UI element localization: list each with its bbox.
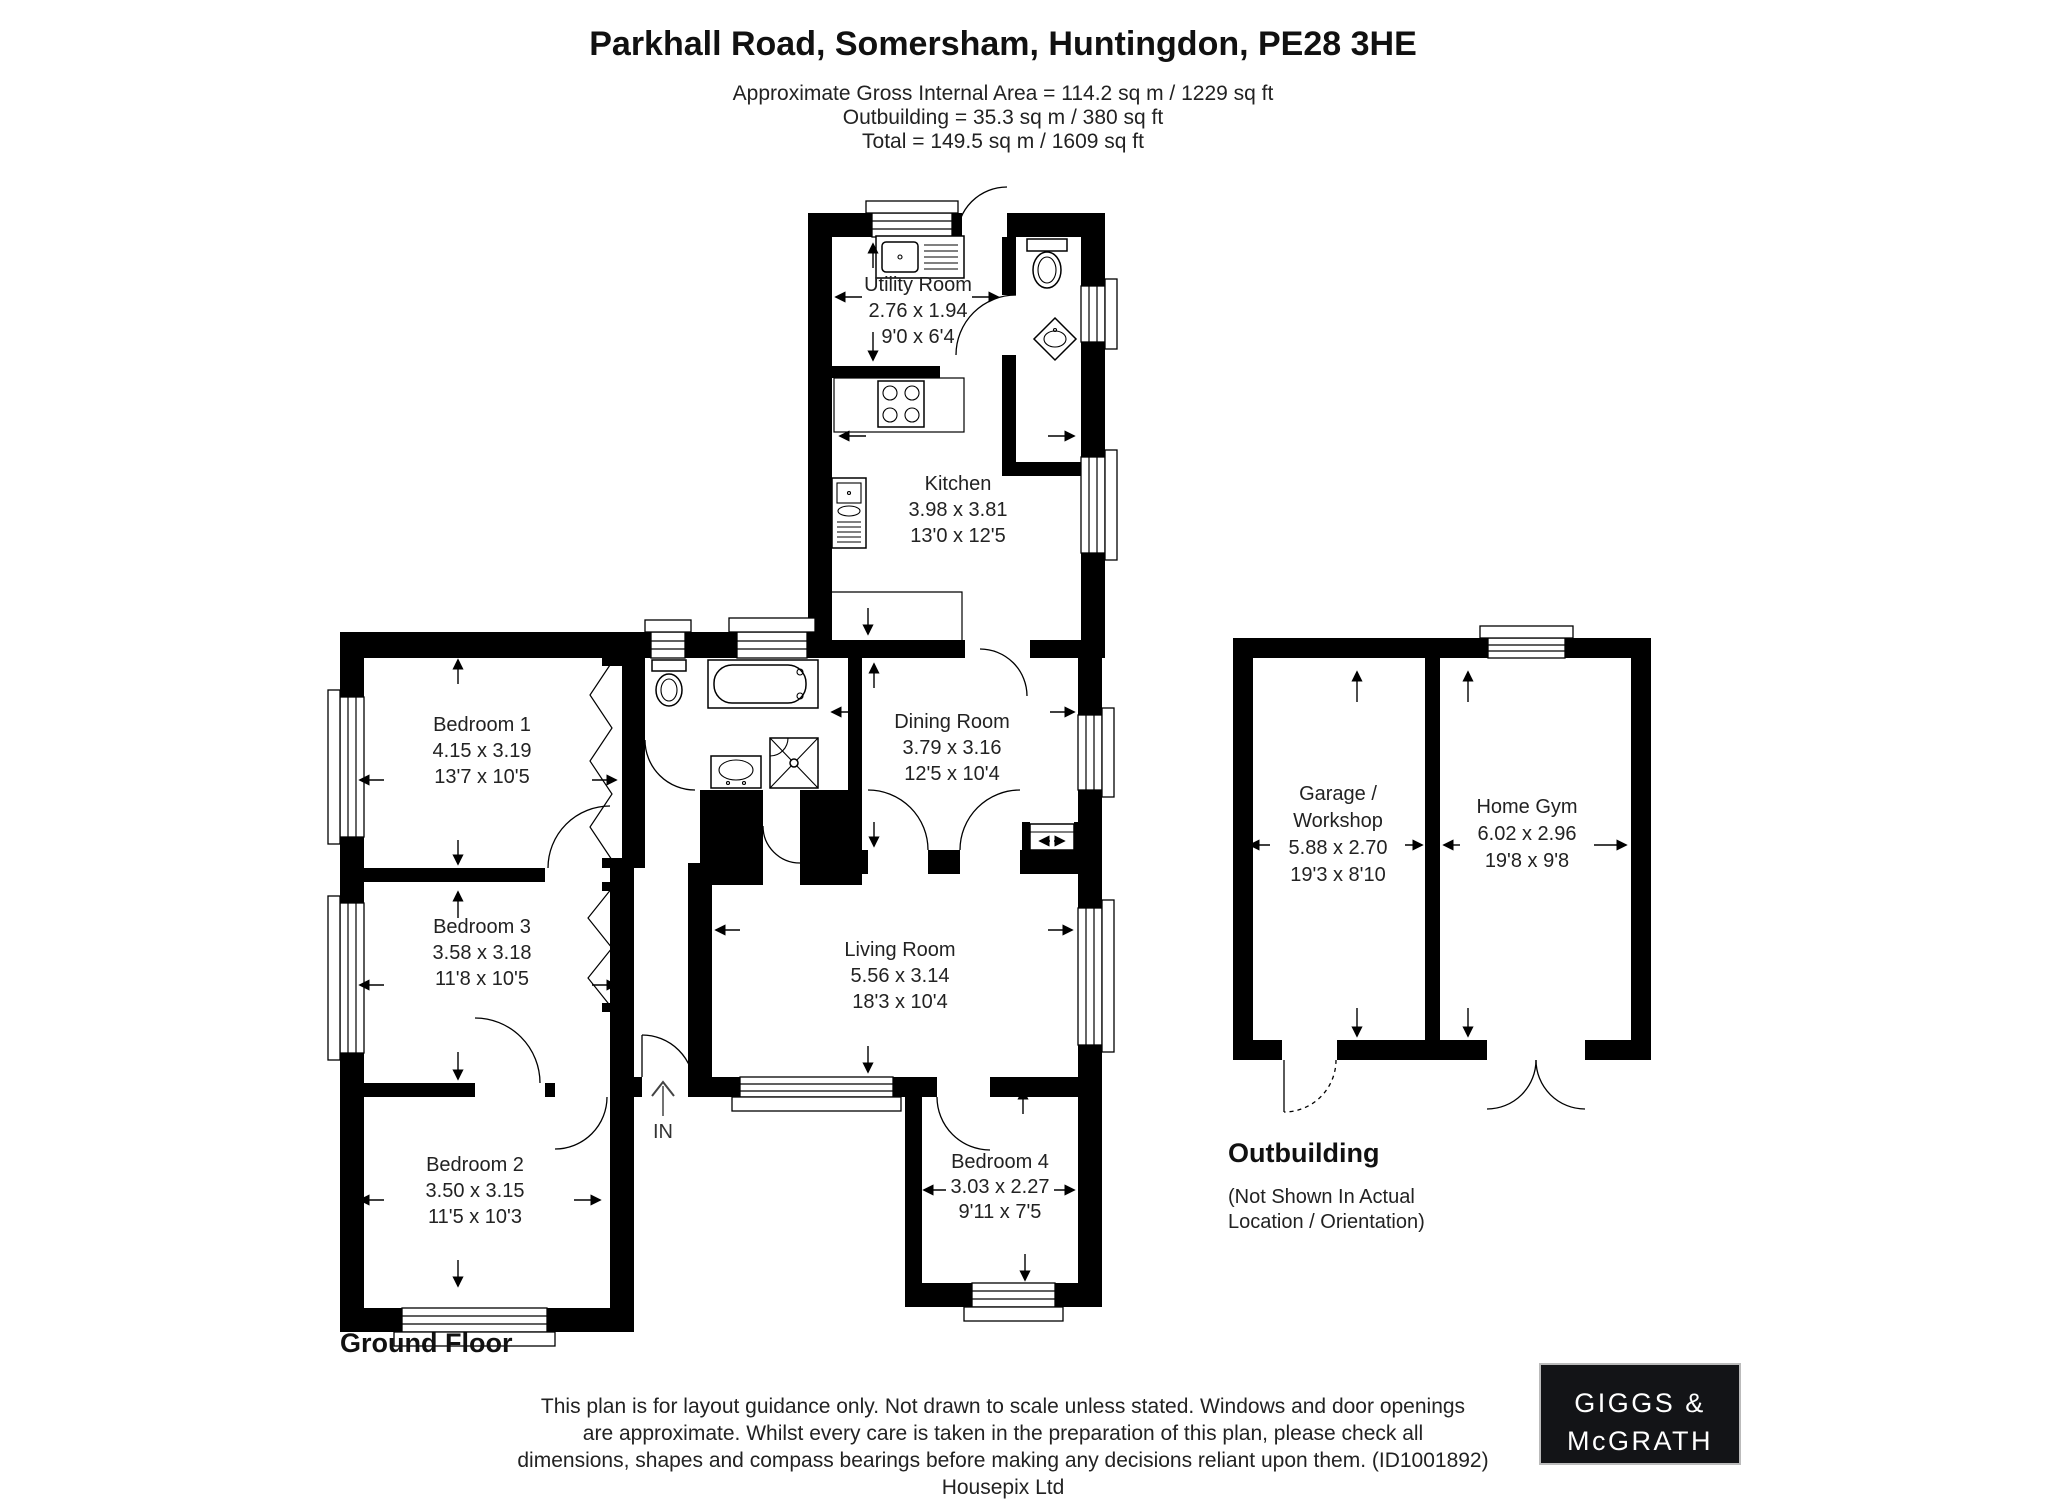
room-name: Bedroom 3 [433, 916, 531, 938]
floorplan-page: Parkhall Road, Somersham, Huntingdon, PE… [0, 0, 2048, 1508]
window [1081, 279, 1117, 349]
window [732, 1077, 901, 1111]
door-arc [763, 826, 800, 863]
window [645, 620, 691, 658]
room-label-bedroom3: Bedroom 3 3.58 x 3.18 11'8 x 10'5 [433, 916, 532, 990]
gym-door-arc [1487, 1060, 1536, 1109]
room-label-bedroom4: Bedroom 4 3.03 x 2.27 9'11 x 7'5 [951, 1151, 1050, 1223]
floorplan-canvas: Parkhall Road, Somersham, Huntingdon, PE… [0, 0, 2048, 1508]
room-label-kitchen: Kitchen 3.98 x 3.81 13'0 x 12'5 [909, 473, 1008, 547]
room-imperial: 9'0 x 6'4 [881, 326, 954, 348]
room-name: Garage / [1299, 783, 1377, 805]
window [866, 201, 958, 237]
corner-basin [1034, 318, 1076, 360]
window [729, 618, 815, 658]
room-imperial: 19'3 x 8'10 [1290, 864, 1386, 886]
window [964, 1283, 1063, 1321]
header: Parkhall Road, Somersham, Huntingdon, PE… [589, 25, 1417, 153]
area-line-1: Approximate Gross Internal Area = 114.2 … [733, 82, 1274, 105]
room-imperial: 18'3 x 10'4 [852, 991, 948, 1013]
room-name: Kitchen [925, 473, 992, 495]
logo-line-2: McGRATH [1567, 1426, 1713, 1456]
room-metric: 3.50 x 3.15 [426, 1180, 525, 1202]
hob [834, 378, 964, 432]
disclaimer-line-1: This plan is for layout guidance only. N… [541, 1395, 1465, 1418]
room-label-garage: Garage / Workshop 5.88 x 2.70 19'3 x 8'1… [1289, 783, 1388, 886]
room-name: Bedroom 4 [951, 1151, 1049, 1173]
cupboard [1022, 822, 1082, 852]
toilet [652, 660, 686, 706]
room-name-2: Workshop [1293, 810, 1383, 832]
outbuilding-title: Outbuilding [1228, 1138, 1379, 1168]
outbuilding-note-2: Location / Orientation) [1228, 1211, 1425, 1233]
room-metric: 3.58 x 3.18 [433, 942, 532, 964]
room-name: Bedroom 1 [433, 714, 531, 736]
room-label-dining: Dining Room 3.79 x 3.16 12'5 x 10'4 [894, 711, 1010, 785]
bath [708, 660, 818, 708]
room-label-bedroom1: Bedroom 1 4.15 x 3.19 13'7 x 10'5 [433, 714, 532, 788]
window [328, 896, 364, 1060]
gym-door-arc [1536, 1060, 1585, 1109]
room-imperial: 11'5 x 10'3 [428, 1206, 522, 1228]
footer-disclaimer: This plan is for layout guidance only. N… [517, 1395, 1488, 1499]
room-metric: 3.03 x 2.27 [951, 1176, 1050, 1198]
disclaimer-line-4: Housepix Ltd [942, 1476, 1065, 1499]
room-imperial: 12'5 x 10'4 [904, 763, 1000, 785]
wardrobe [588, 888, 612, 1008]
window [1480, 626, 1573, 658]
disclaimer-line-3: dimensions, shapes and compass bearings … [517, 1449, 1488, 1472]
room-name: Dining Room [894, 711, 1010, 733]
room-metric: 4.15 x 3.19 [433, 740, 532, 762]
door-arc [868, 790, 928, 850]
room-metric: 2.76 x 1.94 [869, 300, 968, 322]
window [1078, 708, 1114, 797]
agency-logo: GIGGS & McGRATH [1540, 1364, 1740, 1464]
room-imperial: 11'8 x 10'5 [435, 968, 529, 990]
room-imperial: 9'11 x 7'5 [959, 1201, 1042, 1223]
room-label-gym: Home Gym 6.02 x 2.96 19'8 x 9'8 [1476, 796, 1577, 872]
kitchen-sink [832, 478, 866, 548]
room-metric: 6.02 x 2.96 [1478, 823, 1577, 845]
room-imperial: 13'0 x 12'5 [910, 525, 1006, 547]
room-label-bedroom2: Bedroom 2 3.50 x 3.15 11'5 x 10'3 [426, 1154, 525, 1228]
door-arc [937, 1097, 990, 1150]
room-name: Utility Room [864, 274, 972, 296]
room-label-utility: Utility Room 2.76 x 1.94 9'0 x 6'4 [864, 274, 972, 348]
room-name: Home Gym [1476, 796, 1577, 818]
toilet [1027, 239, 1067, 288]
door-arc [548, 806, 610, 868]
room-imperial: 19'8 x 9'8 [1485, 850, 1569, 872]
room-name: Living Room [844, 939, 955, 961]
window [1078, 900, 1114, 1052]
utility-sink [876, 236, 964, 278]
window [328, 690, 364, 844]
door-arc [960, 790, 1020, 850]
wash-basin [711, 756, 761, 788]
room-imperial: 13'7 x 10'5 [434, 766, 530, 788]
disclaimer-line-2: are approximate. Whilst every care is ta… [583, 1422, 1423, 1445]
page-title: Parkhall Road, Somersham, Huntingdon, PE… [589, 25, 1417, 63]
entrance-in-label: IN [653, 1121, 673, 1143]
area-line-2: Outbuilding = 35.3 sq m / 380 sq ft [843, 106, 1164, 129]
kitchen-counter [832, 592, 962, 640]
room-label-living: Living Room 5.56 x 3.14 18'3 x 10'4 [844, 939, 955, 1013]
shower [770, 738, 818, 788]
room-name: Bedroom 2 [426, 1154, 524, 1176]
wardrobe [590, 662, 612, 860]
room-metric: 3.79 x 3.16 [903, 737, 1002, 759]
outbuilding-note-1: (Not Shown In Actual [1228, 1186, 1415, 1208]
window [1081, 450, 1117, 560]
area-line-3: Total = 149.5 sq m / 1609 sq ft [862, 130, 1144, 153]
logo-line-1: GIGGS & [1574, 1388, 1706, 1418]
door-arc [475, 1018, 540, 1083]
room-metric: 3.98 x 3.81 [909, 499, 1008, 521]
door-arc [645, 740, 695, 790]
door-arc [555, 1097, 607, 1149]
ground-floor-label: Ground Floor [340, 1328, 513, 1358]
room-metric: 5.56 x 3.14 [851, 965, 950, 987]
garage-door-arc [1284, 1060, 1336, 1112]
room-metric: 5.88 x 2.70 [1289, 837, 1388, 859]
entrance: IN [652, 1082, 674, 1143]
